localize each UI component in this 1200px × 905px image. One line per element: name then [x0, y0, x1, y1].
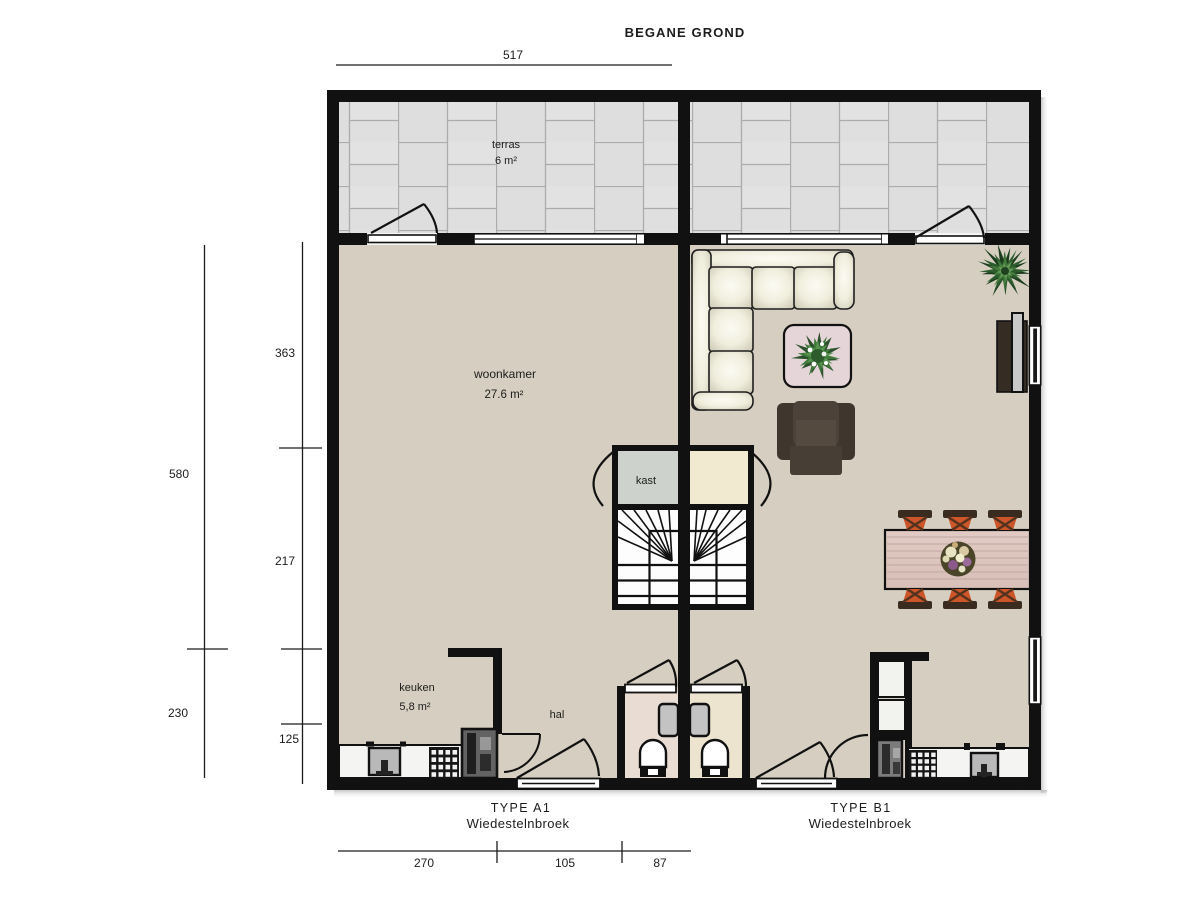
svg-text:BEGANE GROND: BEGANE GROND — [625, 25, 746, 40]
svg-text:87: 87 — [653, 856, 667, 870]
svg-text:6 m²: 6 m² — [495, 155, 517, 167]
svg-text:125: 125 — [279, 732, 299, 746]
svg-text:TYPE B1: TYPE B1 — [830, 801, 891, 815]
svg-text:230: 230 — [168, 706, 188, 720]
svg-text:363: 363 — [275, 346, 295, 360]
svg-text:517: 517 — [503, 48, 523, 62]
svg-text:Wiedestelnbroek: Wiedestelnbroek — [467, 816, 570, 831]
svg-text:Wiedestelnbroek: Wiedestelnbroek — [809, 816, 912, 831]
svg-text:217: 217 — [275, 554, 295, 568]
svg-text:270: 270 — [414, 856, 434, 870]
svg-text:keuken: keuken — [399, 682, 434, 694]
svg-text:TYPE A1: TYPE A1 — [491, 801, 552, 815]
svg-text:27.6 m²: 27.6 m² — [485, 389, 524, 401]
svg-text:580: 580 — [169, 467, 189, 481]
svg-text:woonkamer: woonkamer — [473, 367, 536, 381]
svg-text:terras: terras — [492, 139, 521, 151]
svg-text:kast: kast — [636, 475, 656, 487]
svg-text:5,8 m²: 5,8 m² — [399, 701, 431, 713]
svg-text:105: 105 — [555, 856, 575, 870]
svg-text:hal: hal — [550, 709, 565, 721]
